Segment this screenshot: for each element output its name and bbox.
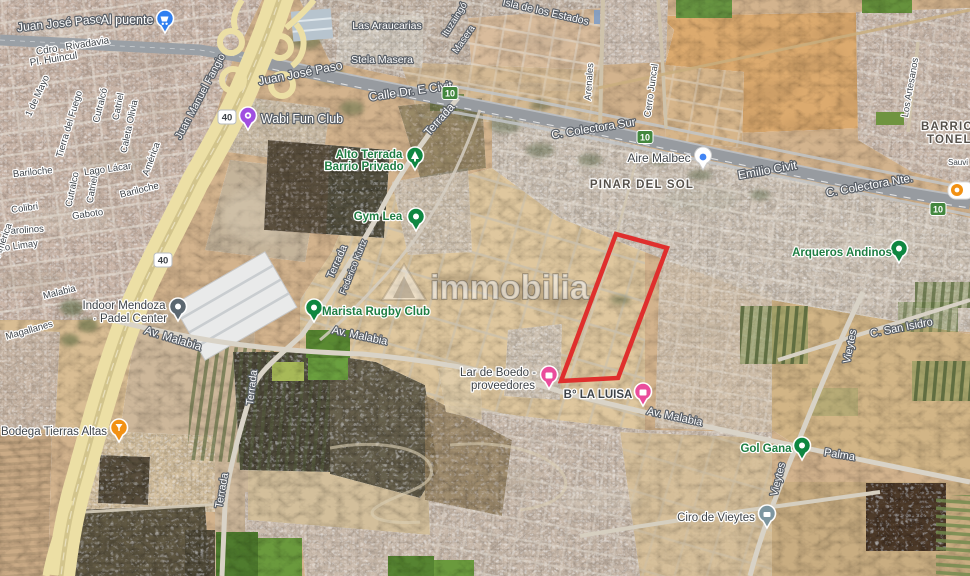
svg-text:Barrio Privado: Barrio Privado [324,161,403,173]
svg-text:PINAR DEL SOL: PINAR DEL SOL [590,179,694,191]
svg-text:· Padel Center: · Padel Center [93,313,167,325]
svg-text:TONEL: TONEL [927,134,970,146]
svg-text:10: 10 [445,89,455,99]
svg-text:Gym Lea: Gym Lea [354,211,403,223]
svg-text:proveedores: proveedores [471,380,535,392]
svg-text:Las Araucarias: Las Araucarias [352,20,421,32]
svg-text:Wabi Fun Club: Wabi Fun Club [261,112,343,126]
svg-text:BARRIO T: BARRIO T [921,121,970,133]
svg-text:10: 10 [933,205,943,215]
svg-text:Alto Terrada: Alto Terrada [336,149,403,161]
svg-text:Stela Masera: Stela Masera [351,54,413,66]
svg-text:Arqueros Andinos: Arqueros Andinos [792,247,892,259]
svg-text:immobilia: immobilia [430,269,590,307]
svg-text:Bodega Tierras Altas: Bodega Tierras Altas [1,426,107,438]
svg-text:Sauvi: Sauvi [948,158,968,167]
svg-text:Marista Rugby Club: Marista Rugby Club [322,306,430,318]
svg-text:Gol Gana: Gol Gana [740,443,792,455]
svg-text:B° LA LUISA: B° LA LUISA [564,389,633,401]
svg-text:10: 10 [640,133,650,143]
svg-text:Aire Malbec: Aire Malbec [627,151,690,165]
svg-text:Lar de Boedo -: Lar de Boedo - [460,367,536,379]
svg-text:40: 40 [158,256,169,267]
svg-text:Al puente: Al puente [101,13,154,27]
svg-text:Ciro de Vieytes: Ciro de Vieytes [677,512,755,524]
svg-text:40: 40 [222,113,233,124]
svg-text:Indoor Mendoza: Indoor Mendoza [82,300,166,312]
